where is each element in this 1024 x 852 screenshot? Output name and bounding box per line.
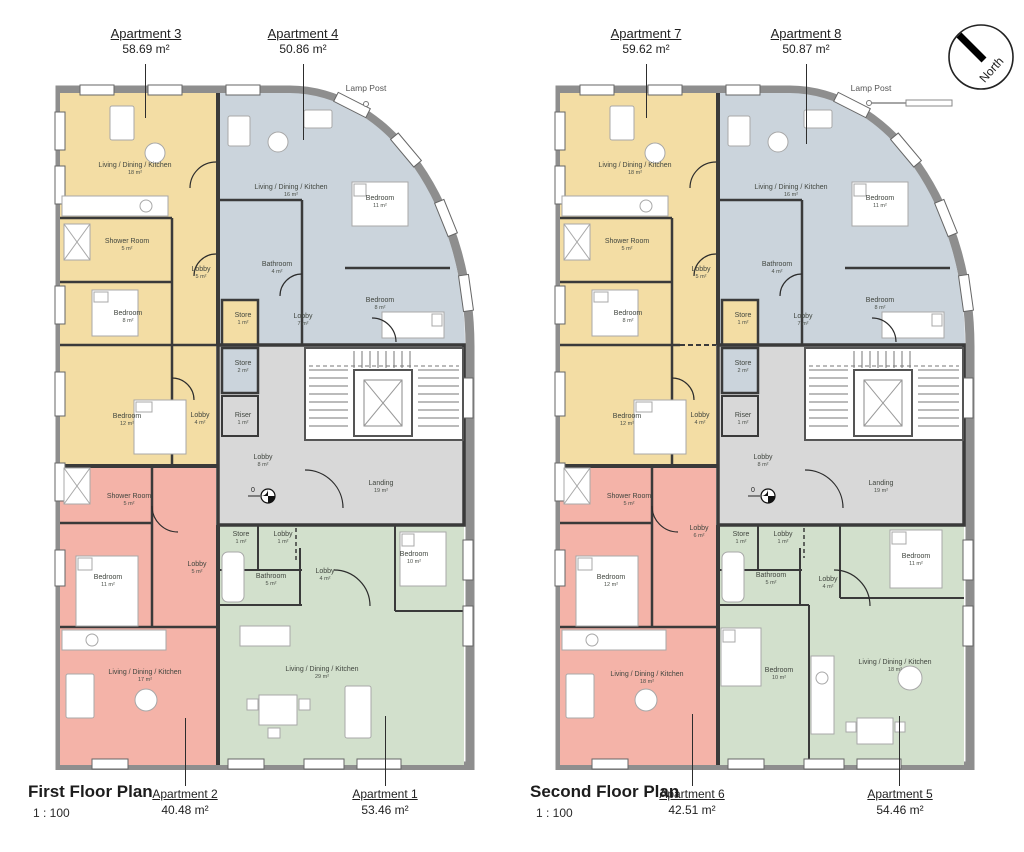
room-label: Bedroom12 m² [113, 413, 141, 428]
stair-core [305, 348, 463, 440]
elevator [354, 370, 412, 436]
room-label: Bathroom4 m² [262, 261, 292, 276]
room-label: Living / Dining / Kitchen17 m² [108, 669, 181, 684]
room-label: Living / Dining / Kitchen18 m² [858, 659, 931, 674]
room-label: Lobby7 m² [793, 313, 812, 328]
room-label: Living / Dining / Kitchen18 m² [98, 162, 171, 177]
leader-line [899, 716, 900, 786]
room-label: Lobby8 m² [753, 454, 772, 469]
apartment-footer-label: Apartment 240.48 m² [152, 787, 217, 818]
room-label: Bedroom8 m² [366, 297, 394, 312]
room-label: Bedroom11 m² [366, 195, 394, 210]
room-label: Bedroom10 m² [400, 551, 428, 566]
room-label: Bedroom8 m² [866, 297, 894, 312]
room-label: Lobby7 m² [293, 313, 312, 328]
lamp-post-symbol [862, 96, 957, 110]
benchmark-zero: 0 [251, 487, 255, 494]
lamp-post-label: Lamp Post [851, 83, 892, 93]
room-label: Shower Room5 m² [107, 493, 151, 508]
room-label: Bedroom12 m² [597, 574, 625, 589]
leader-line [646, 64, 647, 118]
room-label: Landing19 m² [869, 480, 894, 495]
room-label: Shower Room5 m² [605, 238, 649, 253]
room-label: Lobby1 m² [273, 531, 292, 546]
room-label: Lobby4 m² [818, 576, 837, 591]
room-label: Shower Room5 m² [607, 493, 651, 508]
room-label: Lobby4 m² [190, 412, 209, 427]
room-label: Store1 m² [735, 312, 752, 327]
lamp-post-symbol [358, 98, 374, 110]
room-label: Store1 m² [733, 531, 750, 546]
room-label: Lobby4 m² [315, 568, 334, 583]
architectural-drawing-sheet: 0 Living / Dining / Kitchen18 m² Shower … [0, 0, 1024, 852]
room-label: Living / Dining / Kitchen18 m² [610, 671, 683, 686]
leader-line [145, 64, 146, 118]
room-label: Store1 m² [233, 531, 250, 546]
apartment-header-label: Apartment 358.69 m² [111, 26, 182, 57]
first-floor-plan: 0 Living / Dining / Kitchen18 m² Shower … [52, 78, 522, 778]
room-label: Lobby5 m² [691, 266, 710, 281]
room-label: Store2 m² [735, 360, 752, 375]
room-label: Living / Dining / Kitchen16 m² [254, 184, 327, 199]
room-label: Lobby5 m² [187, 561, 206, 576]
room-label: Bedroom11 m² [902, 553, 930, 568]
apartment-footer-label: Apartment 554.46 m² [867, 787, 932, 818]
plan-scale-first: 1 : 100 [33, 806, 70, 820]
lamp-post-label: Lamp Post [346, 83, 387, 93]
apartment-header-label: Apartment 850.87 m² [771, 26, 842, 57]
room-label: Bedroom8 m² [614, 310, 642, 325]
leader-line [806, 64, 807, 144]
room-label: Bathroom5 m² [256, 573, 286, 588]
room-label: Riser1 m² [235, 412, 251, 427]
room-label: Shower Room5 m² [105, 238, 149, 253]
apartment-header-label: Apartment 759.62 m² [611, 26, 682, 57]
room-label: Lobby8 m² [253, 454, 272, 469]
second-floor-plan: 0 Living / Dining / Kitchen18 m² Shower … [552, 78, 1022, 778]
room-label: Lobby6 m² [689, 525, 708, 540]
room-label: Lobby1 m² [773, 531, 792, 546]
room-label: Landing19 m² [369, 480, 394, 495]
leader-line [385, 716, 386, 786]
room-label: Bathroom5 m² [756, 572, 786, 587]
room-label: Store2 m² [235, 360, 252, 375]
plan-scale-second: 1 : 100 [536, 806, 573, 820]
room-label: Bathroom4 m² [762, 261, 792, 276]
plan-title-second: Second Floor Plan [530, 782, 679, 802]
room-label: Lobby5 m² [191, 266, 210, 281]
room-label: Store1 m² [235, 312, 252, 327]
apartment-footer-label: Apartment 153.46 m² [352, 787, 417, 818]
room-label: Riser1 m² [735, 412, 751, 427]
leader-line [692, 714, 693, 786]
room-label: Bedroom10 m² [765, 667, 793, 682]
room-label: Living / Dining / Kitchen16 m² [754, 184, 827, 199]
north-arrow: North [946, 22, 1018, 94]
plan-title-first: First Floor Plan [28, 782, 153, 802]
room-label: Bedroom11 m² [94, 574, 122, 589]
room-label: Living / Dining / Kitchen18 m² [598, 162, 671, 177]
apartment-footer-label: Apartment 642.51 m² [659, 787, 724, 818]
leader-line [185, 718, 186, 786]
benchmark-zero: 0 [751, 487, 755, 494]
elevator [854, 370, 912, 436]
stair-core [805, 348, 963, 440]
room-label: Lobby4 m² [690, 412, 709, 427]
room-label: Bedroom11 m² [866, 195, 894, 210]
room-label: Bedroom8 m² [114, 310, 142, 325]
room-label: Living / Dining / Kitchen29 m² [285, 666, 358, 681]
room-label: Bedroom12 m² [613, 413, 641, 428]
apartment-header-label: Apartment 450.86 m² [268, 26, 339, 57]
leader-line [303, 64, 304, 140]
